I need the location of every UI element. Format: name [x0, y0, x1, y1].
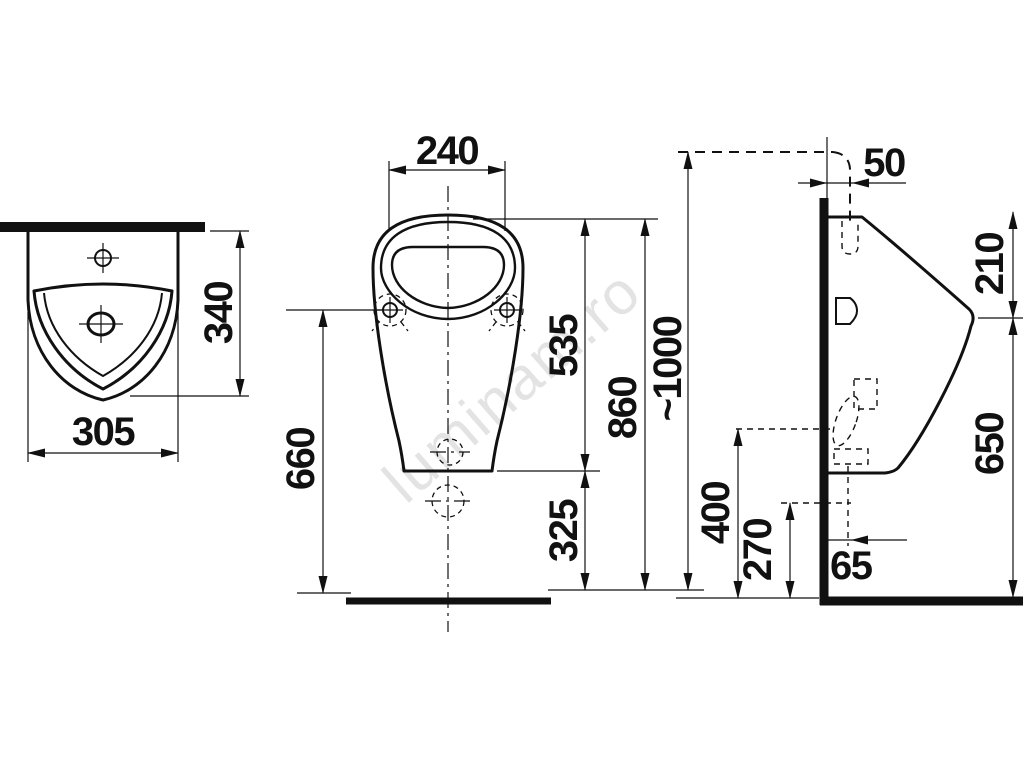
dim-label-rim-width: 240 — [416, 129, 478, 173]
drawing-svg: luminam.ro 340 305 — [0, 0, 1024, 768]
bowl-front-edge — [34, 284, 172, 291]
dimension-535: 535 — [542, 219, 586, 471]
dimension-660: 660 — [279, 310, 384, 593]
dim-label-860: 860 — [601, 377, 645, 439]
dim-label-400: 400 — [694, 482, 738, 544]
dim-label-1000: ~1000 — [646, 316, 690, 421]
body-profile — [828, 217, 973, 473]
dim-label-270: 270 — [736, 519, 780, 581]
dimension-650: 650 — [968, 318, 1013, 597]
dimension-325: 325 — [542, 471, 586, 590]
dim-label-660: 660 — [279, 428, 323, 490]
side-view: 50 ~1000 210 650 400 270 — [646, 137, 1023, 605]
dimension-210: 210 — [968, 212, 1023, 318]
urinal-technical-drawing: luminam.ro 340 305 — [0, 0, 1024, 768]
outlet-hole-crosshair — [79, 305, 123, 343]
dimension-50: 50 — [798, 141, 906, 188]
dim-label-depth: 340 — [197, 282, 241, 344]
dimension-65: 65 — [826, 536, 907, 589]
trap-hidden-details — [828, 379, 877, 546]
dimension-depth-340: 340 — [130, 231, 249, 396]
dim-label-325: 325 — [542, 499, 586, 562]
dim-label-210: 210 — [968, 233, 1012, 295]
dim-label-50: 50 — [863, 141, 905, 185]
dimension-1000: ~1000 — [646, 152, 690, 590]
bowl-outer-line — [34, 291, 172, 389]
top-view: 340 305 — [0, 227, 249, 462]
inlet-hole-crosshair — [87, 243, 119, 273]
dim-label-width: 305 — [72, 410, 135, 454]
dim-label-65: 65 — [830, 544, 873, 588]
inlet-pipe-hidden — [842, 221, 858, 254]
dim-label-535: 535 — [542, 314, 586, 377]
dim-label-650: 650 — [968, 413, 1012, 475]
arrowhead — [810, 179, 827, 188]
spreader-detail — [836, 298, 857, 324]
